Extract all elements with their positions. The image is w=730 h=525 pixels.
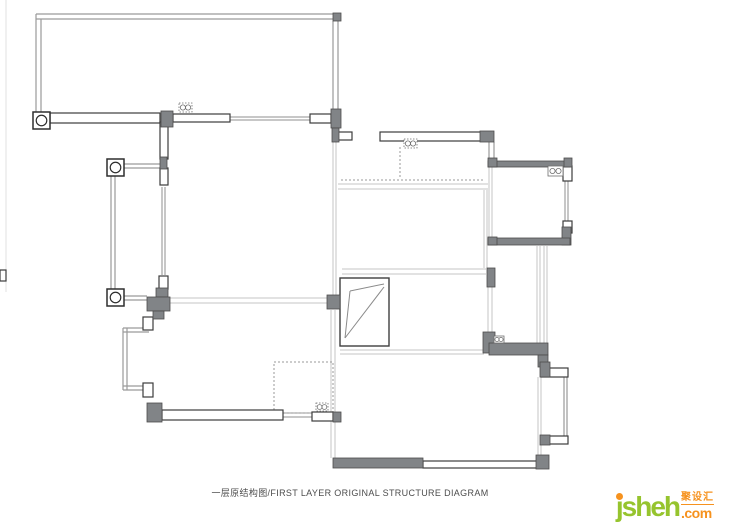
window-wall-segment (162, 410, 283, 420)
concrete-column (332, 128, 339, 142)
window-wall-segment (0, 270, 6, 281)
jsheh-logo: jsheh 聚设汇 .com (616, 493, 714, 521)
window-wall-segment (160, 168, 168, 185)
concrete-column (147, 403, 162, 422)
window-wall-segment (423, 461, 540, 468)
circle-column-circle (110, 292, 121, 303)
concrete-column (488, 237, 497, 245)
concrete-column (327, 295, 340, 309)
concrete-column (156, 288, 168, 297)
logo-chinese-text: 聚设汇 (681, 493, 714, 505)
concrete-column (161, 111, 173, 127)
concrete-column (488, 158, 497, 167)
concrete-column (564, 158, 572, 167)
concrete-column (540, 435, 550, 445)
drawing-title: 一层原结构图/FIRST LAYER ORIGINAL STRUCTURE DI… (0, 486, 700, 499)
concrete-column (536, 455, 549, 469)
concrete-column (480, 131, 494, 142)
window-wall-segment (160, 122, 168, 159)
window-wall-segment (143, 383, 153, 397)
floorplan-page: 一层原结构图/FIRST LAYER ORIGINAL STRUCTURE DI… (0, 0, 730, 525)
concrete-column (333, 13, 341, 21)
concrete-column (333, 458, 423, 468)
window-wall-segment (312, 412, 333, 421)
window-wall-segment (380, 132, 483, 141)
logo-wordmark: jsheh (616, 493, 679, 521)
floor-plan (0, 0, 730, 525)
window-wall-segment (563, 166, 572, 181)
window-wall-segment (50, 113, 160, 123)
concrete-column (153, 311, 164, 319)
concrete-column (147, 297, 170, 311)
window-wall-segment (173, 114, 230, 122)
window-wall-segment (310, 114, 331, 123)
concrete-column (489, 343, 548, 355)
circle-column-circle (36, 115, 47, 126)
concrete-column (333, 412, 341, 422)
window-wall-segment (338, 132, 352, 140)
concrete-column (540, 362, 550, 377)
concrete-column (331, 109, 341, 128)
logo-dot-icon (616, 493, 623, 500)
concrete-column (488, 238, 570, 245)
window-wall-segment (159, 276, 168, 289)
logo-domain-suffix: .com (681, 506, 712, 520)
logo-side-block: 聚设汇 .com (681, 493, 714, 520)
concrete-column (160, 157, 167, 169)
window-wall-segment (143, 317, 153, 330)
circle-column-circle (110, 162, 121, 173)
logo-wordmark-text: jsheh (616, 491, 679, 522)
concrete-column (487, 268, 495, 287)
